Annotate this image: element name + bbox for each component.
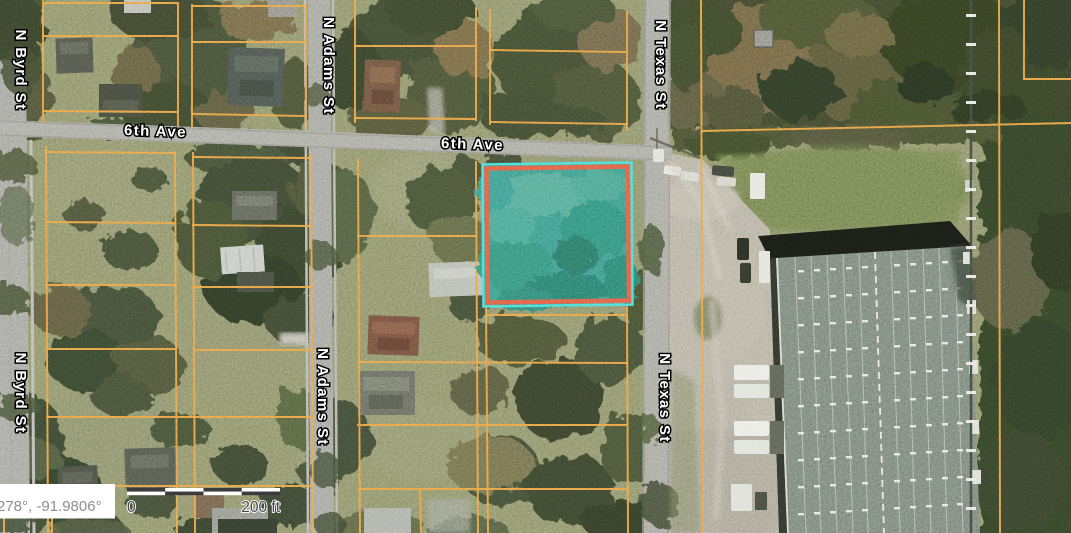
svg-text:200 ft: 200 ft (241, 499, 280, 516)
svg-text:0: 0 (127, 499, 136, 516)
svg-text:278°, -91.9806°: 278°, -91.9806° (0, 498, 102, 515)
